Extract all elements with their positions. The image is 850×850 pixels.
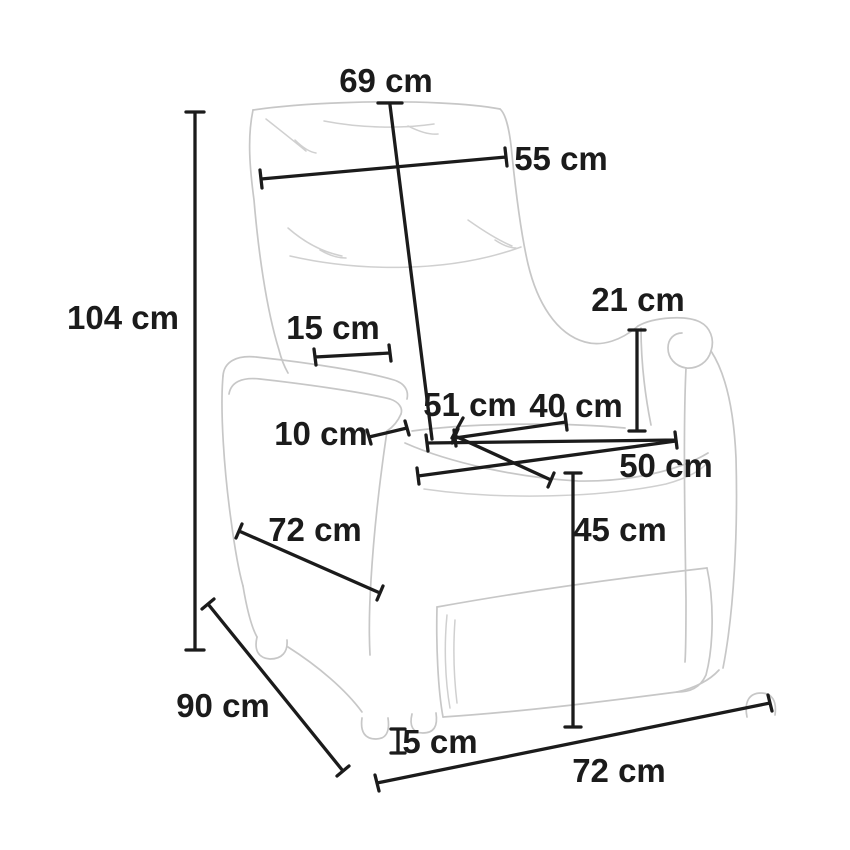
dimension-line-55 [260,148,507,188]
dimension-label-seat-width-back: 40 cm [529,387,623,424]
dimension-label-side-base-depth: 72 cm [268,511,362,548]
left-armrest-front-edge [222,376,243,586]
right-armrest-inner-edge [641,328,651,425]
base-bottom-right-edge [677,670,719,692]
backrest-crease-left [288,228,346,258]
dimension-label-backrest-width: 55 cm [514,140,608,177]
backrest-seam [290,247,521,267]
base-bottom-left-edge [288,647,362,712]
dimension-line-10 [367,421,409,444]
dimension-label-foot-height: 5 cm [402,723,477,760]
dimension-armrest-thickness: 10 cm [274,415,409,452]
dimension-label-seat-depth: 51 cm [423,386,517,423]
dimension-label-backrest-height: 69 cm [339,62,433,99]
headrest-crease-left [266,119,316,153]
right-armrest-top-roll [638,318,712,368]
dimension-total-depth: 90 cm [176,599,349,776]
backrest-left-edge [250,110,288,373]
base-corner-crease [445,615,457,708]
armchair-dimension-svg: 69 cm 55 cm 104 cm 15 cm 21 cm 10 cm 51 … [0,0,850,850]
dimension-annotations: 69 cm 55 cm 104 cm 15 cm 21 cm 10 cm 51 … [67,62,772,791]
dimension-label-seat-width-front: 50 cm [619,447,713,484]
dimension-label-armrest-thickness: 10 cm [274,415,368,452]
dimension-label-total-depth: 90 cm [176,687,270,724]
right-armrest-front-edge [684,368,686,662]
backrest-crease-right [468,220,516,248]
front-left-foot [362,718,389,739]
base-left-edge [243,586,257,637]
dimension-label-armrest-height-above-seat: 21 cm [591,281,685,318]
dimension-backrest-width: 55 cm [260,140,608,188]
dimension-label-seat-height: 45 cm [573,511,667,548]
dimension-seat-height: 45 cm [565,473,667,727]
dimension-side-base-depth: 72 cm [236,511,383,600]
right-armrest-outer-edge [711,351,736,668]
rear-left-foot [256,637,287,659]
seat-front-left-edge [369,431,387,655]
dimension-foot-height: 5 cm [391,723,478,760]
dimension-line-15 [314,345,391,365]
dimension-diagram: 69 cm 55 cm 104 cm 15 cm 21 cm 10 cm 51 … [0,0,850,850]
headrest-crease-top [324,121,438,134]
dimension-backrest-height: 69 cm [339,62,433,439]
footrest-left-edge [437,607,443,717]
dimension-label-base-front-width: 72 cm [572,752,666,789]
right-armrest-roll-curl [668,333,686,368]
dimension-line-21 [629,330,645,431]
dimension-total-height: 104 cm [67,112,204,650]
footrest-right-edge [677,568,712,692]
dimension-label-armrest-top-width: 15 cm [286,309,380,346]
left-armrest-roll-seam [229,379,402,414]
dimension-line-104 [186,112,204,650]
dimension-label-total-height: 104 cm [67,299,179,336]
footrest-bottom-edge [443,692,677,717]
dimension-armrest-top-width: 15 cm [286,309,391,365]
